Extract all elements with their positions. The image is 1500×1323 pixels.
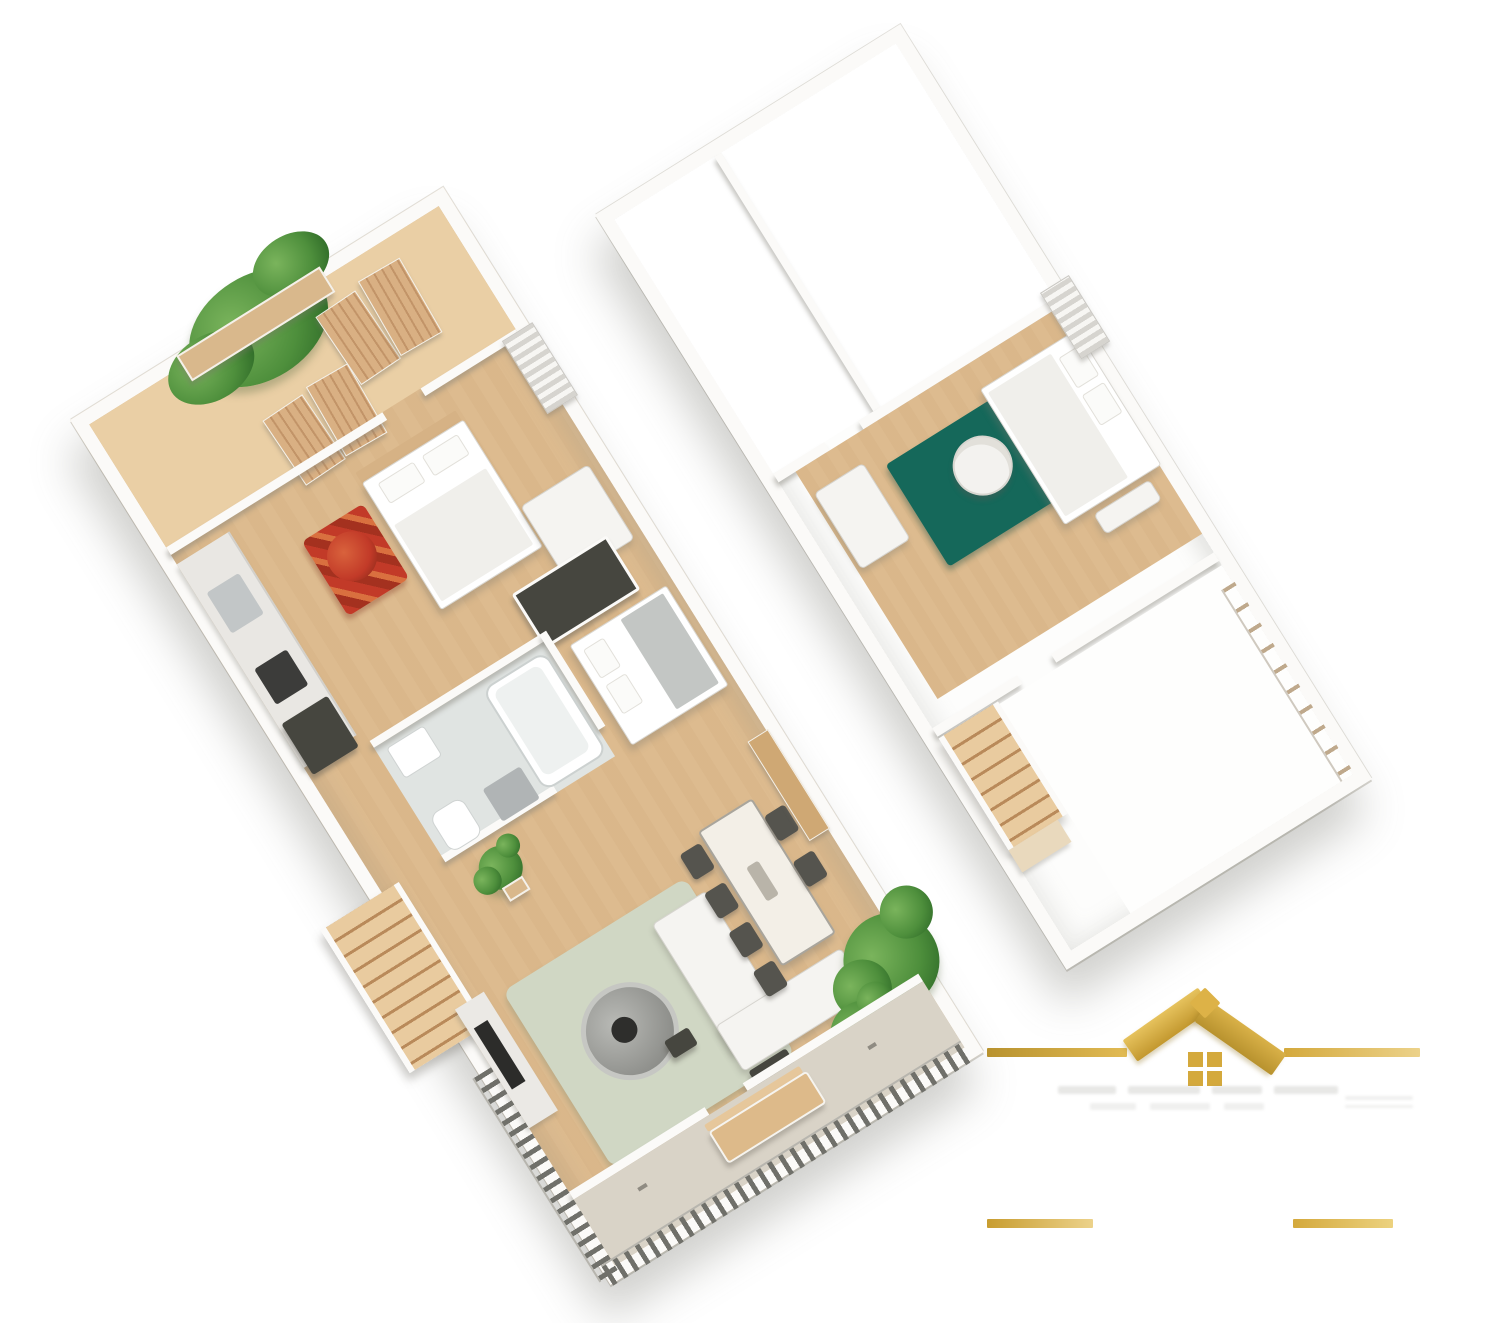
watermark-smudge (1345, 1096, 1413, 1100)
watermark-smudge (1224, 1103, 1264, 1110)
window-pane (1207, 1052, 1222, 1067)
gold-footer-bar-left (987, 1219, 1093, 1228)
pillow (377, 461, 425, 504)
gold-divider-line-right (1284, 1048, 1420, 1057)
gold-divider-line-left (987, 1048, 1127, 1057)
window-pane (1188, 1052, 1203, 1067)
floor-plan-render (0, 0, 1500, 1323)
window-pane (1207, 1071, 1222, 1086)
gold-footer-bar-right (1293, 1219, 1393, 1228)
watermark-smudge (1274, 1086, 1338, 1094)
pillow (605, 673, 643, 715)
watermark-smudge (1212, 1086, 1262, 1094)
louvered-shutter (502, 322, 578, 414)
watermark-smudge (1150, 1103, 1210, 1110)
staircase (321, 882, 488, 1073)
pillow (583, 637, 621, 679)
watermark-smudge (1345, 1105, 1413, 1108)
pillow (422, 434, 470, 477)
window-pane (1188, 1071, 1203, 1086)
logo-house-icon (1128, 988, 1288, 1098)
watermark-smudge (1090, 1103, 1136, 1110)
watermark-smudge (1128, 1086, 1200, 1094)
watermark-smudge (1058, 1086, 1116, 1094)
